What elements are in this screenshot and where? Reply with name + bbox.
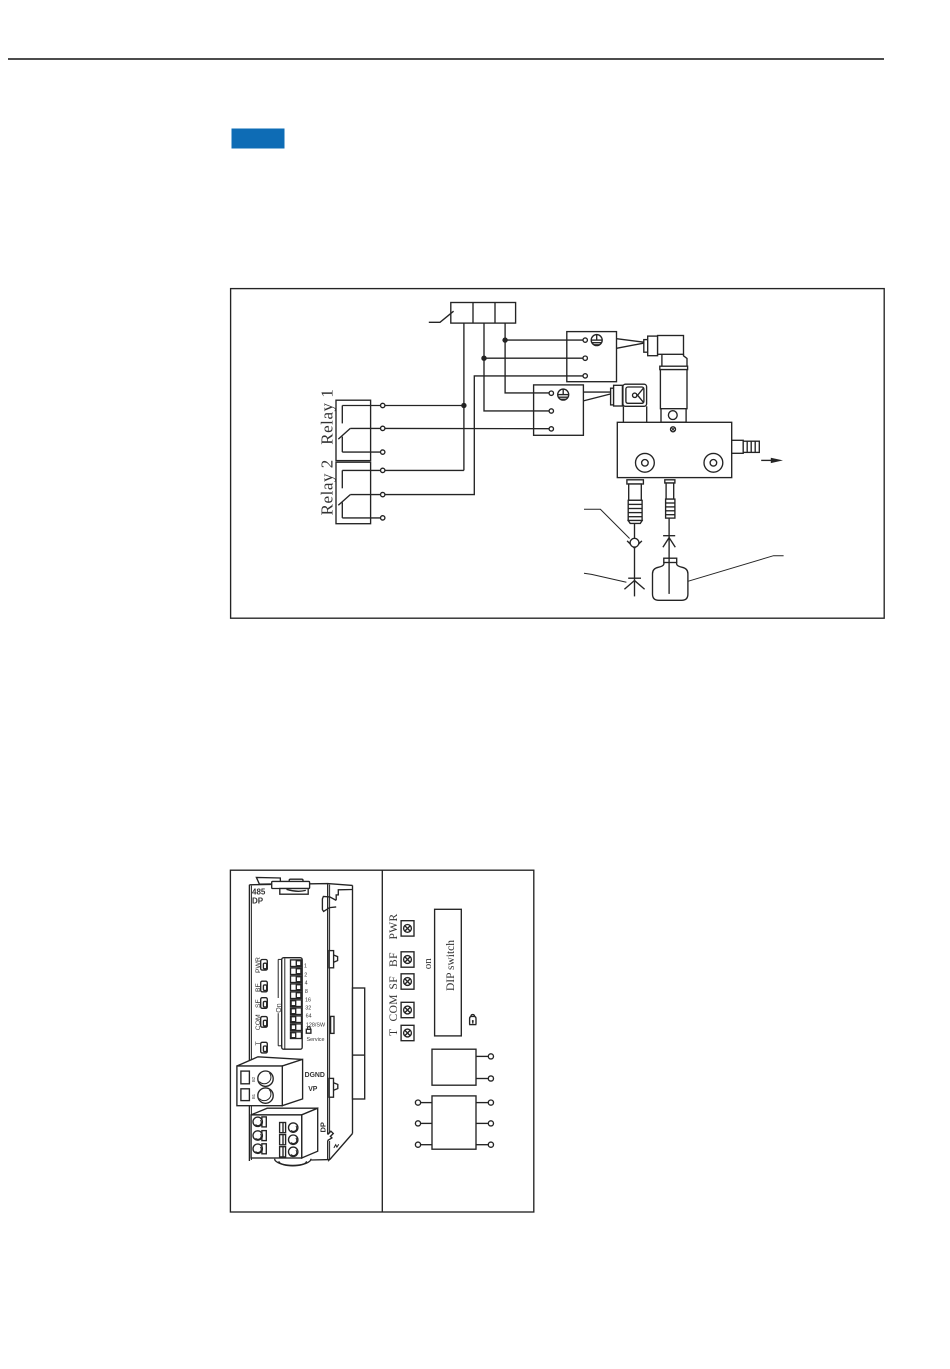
svg-text:485: 485: [252, 888, 266, 897]
svg-text:64: 64: [306, 1014, 312, 1020]
svg-text:B1: B1: [251, 1093, 256, 1099]
svg-text:COM: COM: [388, 994, 400, 1021]
svg-text:8: 8: [305, 989, 308, 995]
svg-text:Service: Service: [307, 1037, 325, 1043]
svg-text:DP: DP: [319, 1122, 328, 1132]
svg-text:128/SW: 128/SW: [306, 1022, 326, 1028]
svg-text:on: on: [422, 958, 434, 970]
svg-text:DP: DP: [252, 897, 264, 906]
svg-text:BF: BF: [388, 952, 400, 967]
svg-text:B2: B2: [251, 1076, 256, 1082]
svg-text:T: T: [388, 1029, 400, 1036]
svg-text:Relay 1: Relay 1: [317, 389, 336, 445]
svg-text:1: 1: [304, 963, 307, 969]
svg-text:2: 2: [304, 972, 307, 978]
svg-text:VP: VP: [308, 1086, 318, 1093]
svg-text:DIP switch: DIP switch: [445, 940, 457, 991]
svg-text:32: 32: [305, 1006, 311, 1012]
svg-text:16: 16: [305, 998, 311, 1004]
svg-text:SF: SF: [388, 976, 400, 990]
svg-text:Relay 2: Relay 2: [317, 459, 336, 515]
svg-text:PWR: PWR: [388, 913, 400, 939]
svg-text:DGND: DGND: [305, 1072, 325, 1079]
svg-text:4: 4: [305, 980, 308, 986]
